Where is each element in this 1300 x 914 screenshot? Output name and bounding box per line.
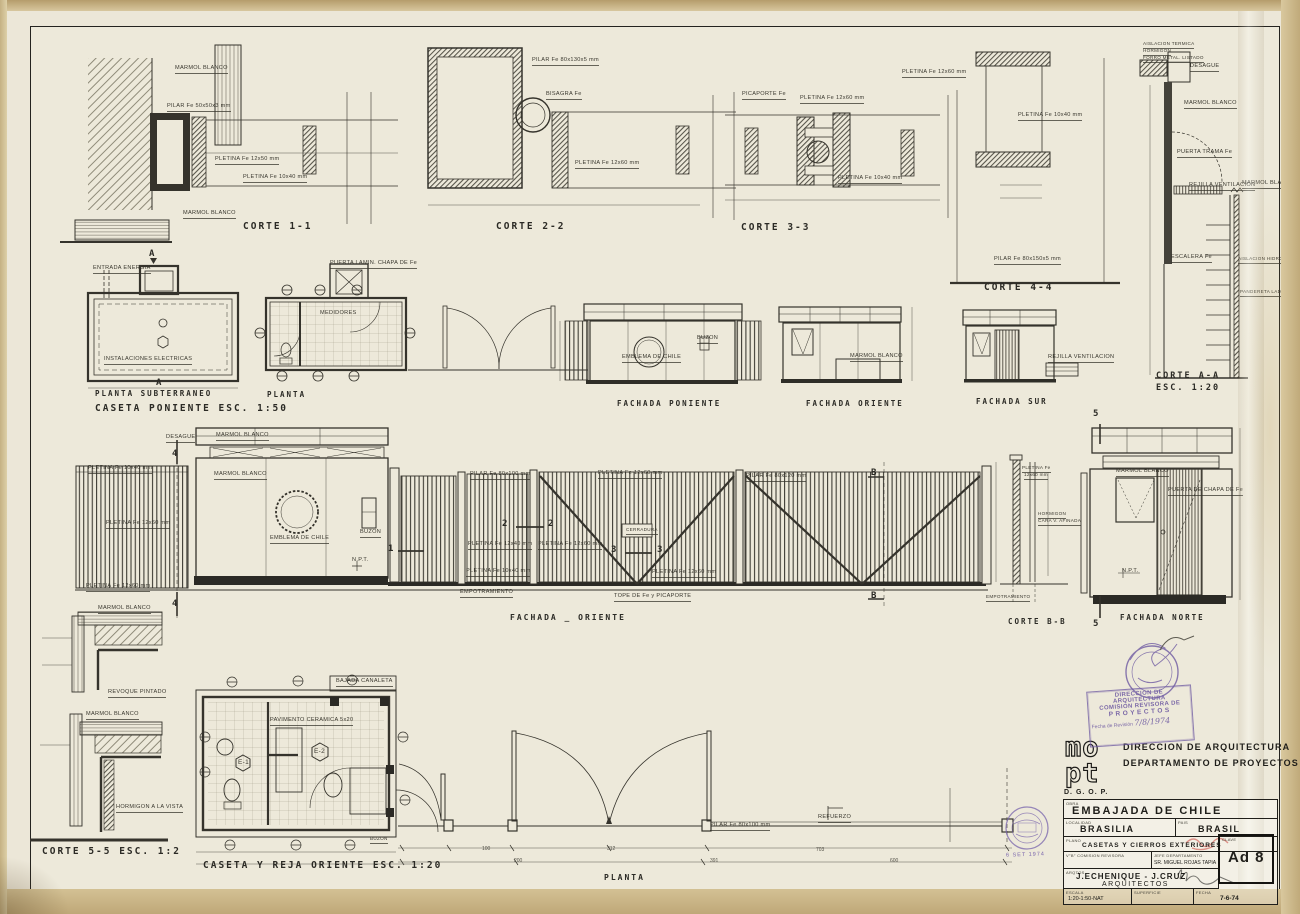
anno-40: BUZON xyxy=(360,530,381,538)
anno-17: DESAGUE xyxy=(1190,64,1219,72)
anno-47: PLETINA Fe 12x60 mm xyxy=(538,542,602,550)
marker-0: A xyxy=(149,250,154,259)
pais-value: BRASIL xyxy=(1198,824,1241,834)
anno-65: PAVIMENTO CERAMICA 5x20 xyxy=(270,718,353,726)
anno-10: PLETINA Fe 10x40 mm xyxy=(838,176,902,184)
title-14: FACHADA NORTE xyxy=(1120,614,1205,622)
anno-67: E-2 xyxy=(314,749,325,757)
svg-text:pt: pt xyxy=(1065,758,1100,789)
anno-36: PLETINA Fe 12x60 mm xyxy=(106,521,170,529)
dim-0: 100 xyxy=(482,847,490,852)
anno-11: PLETINA Fe 12x60 mm xyxy=(902,70,966,78)
marker-8: 3 xyxy=(657,546,662,555)
dgop-label: D. G. O. P. xyxy=(1064,789,1108,796)
title-3: CORTE 4-4 xyxy=(984,283,1053,293)
title-7: CASETA PONIENTE ESC. 1:50 xyxy=(95,404,288,414)
anno-3: PLETINA Fe 10x40 mm xyxy=(243,175,307,183)
dim-2: 312 xyxy=(607,847,615,852)
plano-value: CASETAS Y CIERROS EXTERIORES xyxy=(1082,842,1222,849)
fecha-value: 7-6-74 xyxy=(1220,895,1239,902)
anno-62: MARMOL BLANCO xyxy=(86,712,139,720)
anno-32: REJILLA VENTILACION xyxy=(1048,355,1114,363)
anno-2: PLETINA Fe 12x50 mm xyxy=(215,157,279,165)
clave-label: CLAVE xyxy=(1222,837,1236,842)
title-5: ESC. 1:20 xyxy=(1156,384,1220,393)
anno-53: 12x60 mm xyxy=(1024,473,1048,480)
anno-51: TOPE DE Fe y PICAPORTE xyxy=(614,594,691,602)
anno-60: MARMOL BLANCO xyxy=(98,606,151,614)
anno-6: BISAGRA Fe xyxy=(546,92,582,100)
title-6: PLANTA SUBTERRANEO xyxy=(95,390,212,398)
anno-8: PICAPORTE Fe xyxy=(742,92,786,100)
marker-7: 3 xyxy=(611,546,616,555)
anno-43: PLETINA Fe 12x60 mm xyxy=(598,471,662,479)
anno-44: PILAR Fe 80x120 mm xyxy=(746,474,806,482)
dim-4: 703 xyxy=(816,848,824,853)
arquitectos-value: J.ECHENIQUE - J.CRUZ xyxy=(1076,872,1186,881)
marker-2: 4 xyxy=(172,450,177,459)
pais-label: PAIS xyxy=(1178,820,1188,825)
anno-19: PUERTA TRAMA Fe xyxy=(1177,150,1232,158)
title-2: CORTE 3-3 xyxy=(741,223,810,233)
title-13: CORTE B-B xyxy=(1008,618,1067,626)
revision-stamp: DIRECCION DE ARQUITECTURA COMISION REVIS… xyxy=(1086,684,1195,747)
anno-45: CERRADURA xyxy=(626,528,658,535)
clave-value: Ad 8 xyxy=(1228,849,1265,866)
anno-22: ESCALERA Fe xyxy=(1171,255,1212,263)
departamento-line: DEPARTAMENTO DE PROYECTOS xyxy=(1123,758,1299,768)
scan-edge-left xyxy=(0,0,7,914)
title-10: FACHADA ORIENTE xyxy=(806,400,904,408)
marker-5: 2 xyxy=(502,520,507,529)
scan-corner-shadow xyxy=(0,856,70,914)
anno-9: PLETINA Fe 12x60 mm xyxy=(800,96,864,104)
anno-63: HORMIGON A LA VISTA xyxy=(116,805,183,813)
scanned-drawing-sheet: CORTE 1-1CORTE 2-2CORTE 3-3CORTE 4-4CORT… xyxy=(0,0,1300,914)
marker-4: 1 xyxy=(388,545,393,554)
anno-42: PILAR Fe 80x100 mm xyxy=(470,472,530,480)
anno-26: INSTALACIONES ELECTRICAS xyxy=(104,357,192,365)
anno-49: PLETINA Fe 12x60 mm xyxy=(652,570,716,578)
anno-7: PLETINA Fe 12x60 mm xyxy=(575,161,639,169)
anno-61: REVOQUE PINTADO xyxy=(108,690,166,698)
anno-70: REFUERZO xyxy=(818,815,851,823)
jefe-label: JEFE DEPARTAMENTO xyxy=(1154,853,1203,858)
arquitectos-title: ARQUITECTOS xyxy=(1102,881,1169,888)
title-16: CASETA Y REJA ORIENTE ESC. 1:20 xyxy=(203,861,442,871)
fecha-label: FECHA xyxy=(1196,890,1211,895)
anno-48: PLETINA Fe 10x40 mm xyxy=(466,569,530,577)
anno-37: PLETINA Fe 12x60 mm xyxy=(86,584,150,592)
anno-46: PLETINA Fe 12x40 mm xyxy=(468,542,532,550)
dim-3: 391 xyxy=(710,859,718,864)
anno-55: CARA V. AFINADA xyxy=(1038,519,1081,526)
localidad-value: BRASILIA xyxy=(1080,824,1135,834)
title-block-table: OBRA EMBAJADA DE CHILE LOCALIDAD BRASILI… xyxy=(1063,799,1278,905)
marker-10: B xyxy=(871,592,876,601)
superficie-label: SUPERFICIE xyxy=(1134,890,1161,895)
anno-16: FORRO METAL. LISTADO xyxy=(1143,56,1204,63)
title-9: FACHADA PONIENTE xyxy=(617,400,721,408)
marker-1: A xyxy=(156,379,161,388)
scan-edge-top xyxy=(0,0,1300,11)
vb-label: V°B° COMISION REVISORA xyxy=(1066,853,1124,858)
plano-label: PLANO xyxy=(1066,838,1081,843)
anno-27: PUERTA LAMIN. CHAPA DE Fe xyxy=(330,261,417,269)
anno-34: MARMOL BLANCO xyxy=(216,433,269,441)
anno-18: MARMOL BLANCO xyxy=(1184,101,1237,109)
anno-31: MARMOL BLANCO xyxy=(850,354,903,362)
title-8: PLANTA xyxy=(267,391,306,399)
marker-12: 5 xyxy=(1093,620,1098,629)
anno-28: MEDIDORES xyxy=(320,311,357,318)
anno-5: PILAR Fe 80x130x5 mm xyxy=(532,58,599,66)
anno-1: PILAR Fe 50x50x3 mm xyxy=(167,104,231,112)
revision-stamp-fecha-value: 7/8/1974 xyxy=(1134,716,1170,727)
dim-1: 200 xyxy=(514,859,522,864)
title-17: PLANTA xyxy=(604,874,645,882)
anno-69: PILAR Fe 80x100 mm xyxy=(710,823,770,831)
title-12: FACHADA _ ORIENTE xyxy=(510,614,626,622)
anno-0: MARMOL BLANCO xyxy=(175,66,228,74)
anno-12: PLETINA Fe 10x40 mm xyxy=(1018,113,1082,121)
marker-6: 2 xyxy=(548,520,553,529)
anno-33: DESAGUE xyxy=(166,435,195,443)
title-4: CORTE A-A xyxy=(1156,372,1220,381)
anno-68: BUZON xyxy=(370,837,388,844)
marker-11: 5 xyxy=(1093,410,1098,419)
anno-35: PLETINA Fe 10x40 mm xyxy=(88,466,152,474)
anno-66: E-1 xyxy=(238,760,249,768)
marker-9: B xyxy=(871,469,876,478)
clave-box: CLAVE Ad 8 xyxy=(1218,834,1274,884)
anno-30: BUZON xyxy=(697,336,718,344)
marker-3: 4 xyxy=(172,600,177,609)
anno-50: EMPOTRAMIENTO xyxy=(460,590,513,598)
anno-57: MARMOL BLANCO xyxy=(1116,469,1169,477)
anno-59: N.P.T. xyxy=(1122,569,1138,576)
title-1: CORTE 2-2 xyxy=(496,222,565,232)
anno-56: EMPOTRAMIENTO xyxy=(986,595,1030,602)
obra-value: EMBAJADA DE CHILE xyxy=(1072,805,1222,817)
escala-label: ESCALA xyxy=(1066,890,1084,895)
anno-25: ENTRADA ENERGIA xyxy=(93,266,151,274)
title-block: mo pt D. G. O. P. DIRECCION DE ARQUITECT… xyxy=(1063,732,1278,905)
jefe-value: SR. MIGUEL ROJAS TAPIA xyxy=(1154,860,1216,866)
anno-64: BAJADA CANALETA xyxy=(336,679,393,687)
anno-29: EMBLEMA DE CHILE xyxy=(622,355,681,363)
escala-value: 1:20-1:50-NAT xyxy=(1068,896,1104,902)
anno-58: PUERTA DE CHAPA DE Fe xyxy=(1168,488,1243,496)
anno-38: MARMOL BLANCO xyxy=(214,472,267,480)
scan-edge-right xyxy=(1281,0,1300,914)
dim-5: 600 xyxy=(890,859,898,864)
anno-13: PILAR Fe 80x150x5 mm xyxy=(994,257,1061,265)
title-0: CORTE 1-1 xyxy=(243,222,312,232)
anno-4: MARMOL BLANCO xyxy=(183,211,236,219)
anno-39: EMBLEMA DE CHILE xyxy=(270,536,329,544)
anno-41: N.P.T. xyxy=(352,558,368,565)
title-11: FACHADA SUR xyxy=(976,398,1048,406)
